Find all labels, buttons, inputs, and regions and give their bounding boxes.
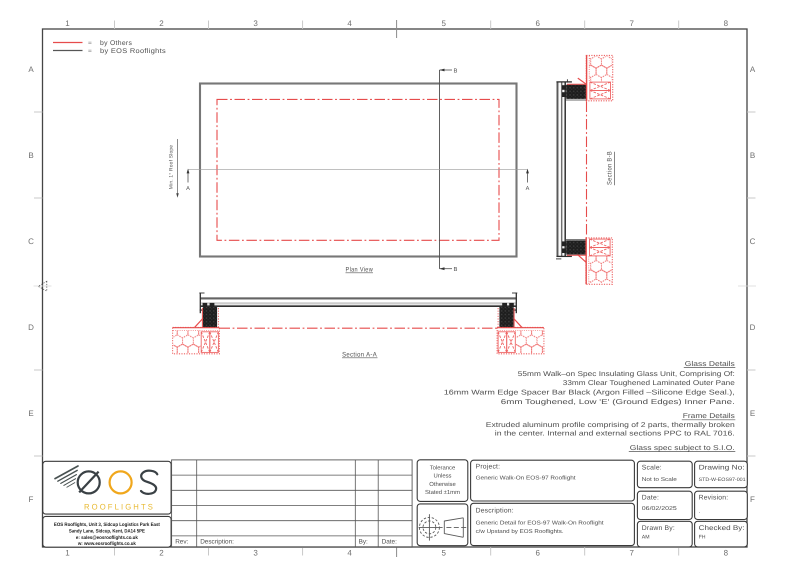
svg-text:Stated ±1mm: Stated ±1mm — [425, 489, 460, 496]
svg-text:STD-W-EOS97-001: STD-W-EOS97-001 — [699, 477, 746, 483]
svg-text:B: B — [454, 68, 458, 74]
svg-text:e: sales@eosrooflights.co.uk: e: sales@eosrooflights.co.uk — [76, 535, 138, 541]
svg-text:E: E — [750, 409, 755, 418]
svg-text:A: A — [526, 186, 530, 192]
svg-text:Min. 1° Roof Slope: Min. 1° Roof Slope — [169, 145, 175, 190]
svg-text:8: 8 — [724, 19, 729, 28]
svg-text:B: B — [454, 267, 458, 273]
svg-text:2: 2 — [159, 549, 164, 558]
svg-text:Revision:: Revision: — [699, 495, 729, 502]
svg-text:6mm Toughened, Low 'E' (Ground: 6mm Toughened, Low 'E' (Ground Edges) In… — [501, 398, 735, 406]
svg-text:Sandy Lane, Sidcup, Kent, DA14: Sandy Lane, Sidcup, Kent, DA14 5PE — [69, 528, 146, 534]
svg-text:B: B — [750, 151, 755, 160]
svg-text:Drawn By:: Drawn By: — [642, 525, 675, 532]
svg-text:Rev:: Rev: — [175, 538, 188, 545]
svg-text:6: 6 — [535, 549, 540, 558]
svg-text:1: 1 — [65, 19, 70, 28]
svg-text:16mm Warm Edge Spacer Bar Blac: 16mm Warm Edge Spacer Bar Black (Argon F… — [444, 389, 735, 397]
svg-text:5: 5 — [441, 549, 446, 558]
svg-text:6: 6 — [535, 19, 540, 28]
svg-text:by Others: by Others — [100, 40, 132, 47]
svg-text:c/w Upstand by EOS Rooflights.: c/w Upstand by EOS Rooflights. — [476, 528, 564, 535]
svg-text:F: F — [750, 495, 755, 504]
svg-text:ROOFLIGHTS: ROOFLIGHTS — [84, 503, 155, 512]
svg-text:Generic Detail for EOS-97 Walk: Generic Detail for EOS-97 Walk-On Roofli… — [476, 520, 604, 527]
svg-text:Scale:: Scale: — [642, 465, 662, 472]
svg-text:D: D — [750, 323, 756, 332]
svg-text:Drawing No:: Drawing No: — [699, 465, 745, 472]
svg-text:1: 1 — [65, 549, 70, 558]
svg-text:A: A — [28, 65, 34, 74]
svg-text:Section A-A: Section A-A — [342, 351, 377, 358]
svg-text:AM: AM — [642, 535, 650, 541]
svg-text:4: 4 — [347, 19, 352, 28]
svg-text:7: 7 — [629, 19, 634, 28]
svg-text:F: F — [29, 495, 34, 504]
svg-text:Glass spec subject to S.I.O.: Glass spec subject to S.I.O. — [630, 444, 735, 452]
svg-text:Section B-B: Section B-B — [607, 151, 614, 185]
svg-text:Description:: Description: — [200, 538, 234, 545]
svg-text:=: = — [88, 40, 92, 47]
svg-text:=: = — [88, 48, 92, 55]
svg-text:A: A — [186, 186, 190, 192]
svg-text:3: 3 — [253, 549, 258, 558]
svg-text:Frame Details: Frame Details — [683, 412, 736, 420]
svg-text:3: 3 — [253, 19, 258, 28]
svg-text:By:: By: — [359, 538, 368, 545]
svg-text:Plan View: Plan View — [346, 266, 374, 273]
svg-text:Date:: Date: — [642, 495, 659, 502]
svg-text:Glass Details: Glass Details — [685, 360, 736, 368]
svg-text:E: E — [28, 409, 33, 418]
svg-text:Date:: Date: — [382, 538, 397, 545]
svg-text:FH: FH — [699, 535, 706, 541]
svg-text:Description:: Description: — [476, 508, 514, 515]
svg-text:Tolerance: Tolerance — [430, 464, 456, 471]
svg-text:C: C — [750, 237, 756, 246]
svg-text:by EOS Rooflights: by EOS Rooflights — [100, 48, 166, 55]
svg-text:33mm Clear Toughened Laminated: 33mm Clear Toughened Laminated Outer Pan… — [563, 379, 735, 387]
svg-text:Generic Walk-On EOS-97 Rooflig: Generic Walk-On EOS-97 Rooflight — [476, 475, 576, 482]
svg-text:7: 7 — [629, 549, 634, 558]
svg-text:5: 5 — [441, 19, 446, 28]
svg-text:4: 4 — [347, 549, 352, 558]
svg-text:55mm Walk–on Spec Insulating G: 55mm Walk–on Spec Insulating Glass Unit,… — [518, 370, 735, 378]
svg-text:A: A — [750, 65, 756, 74]
svg-text:Not to Scale: Not to Scale — [642, 476, 677, 483]
svg-text:8: 8 — [724, 549, 729, 558]
svg-text:w: www.eosrooflights.co.uk: w: www.eosrooflights.co.uk — [77, 541, 136, 547]
svg-text:C: C — [28, 237, 34, 246]
svg-text:06/02/2025: 06/02/2025 — [642, 505, 677, 512]
svg-text:2: 2 — [159, 19, 164, 28]
svg-text:Extruded aluminum profile comp: Extruded aluminum profile comprising of … — [486, 421, 735, 429]
svg-text:Unless: Unless — [433, 473, 451, 480]
svg-text:in the center. Internal and ex: in the center. Internal and external sec… — [495, 430, 735, 438]
svg-text:Checked By:: Checked By: — [699, 525, 745, 532]
svg-text:Otherwise: Otherwise — [429, 481, 456, 488]
svg-text:Project:: Project: — [476, 464, 501, 471]
svg-text:B: B — [28, 151, 33, 160]
svg-text:D: D — [28, 323, 34, 332]
svg-text:EOS Rooflights, Unit 3, Sidcup: EOS Rooflights, Unit 3, Sidcup Logistics… — [54, 522, 160, 528]
